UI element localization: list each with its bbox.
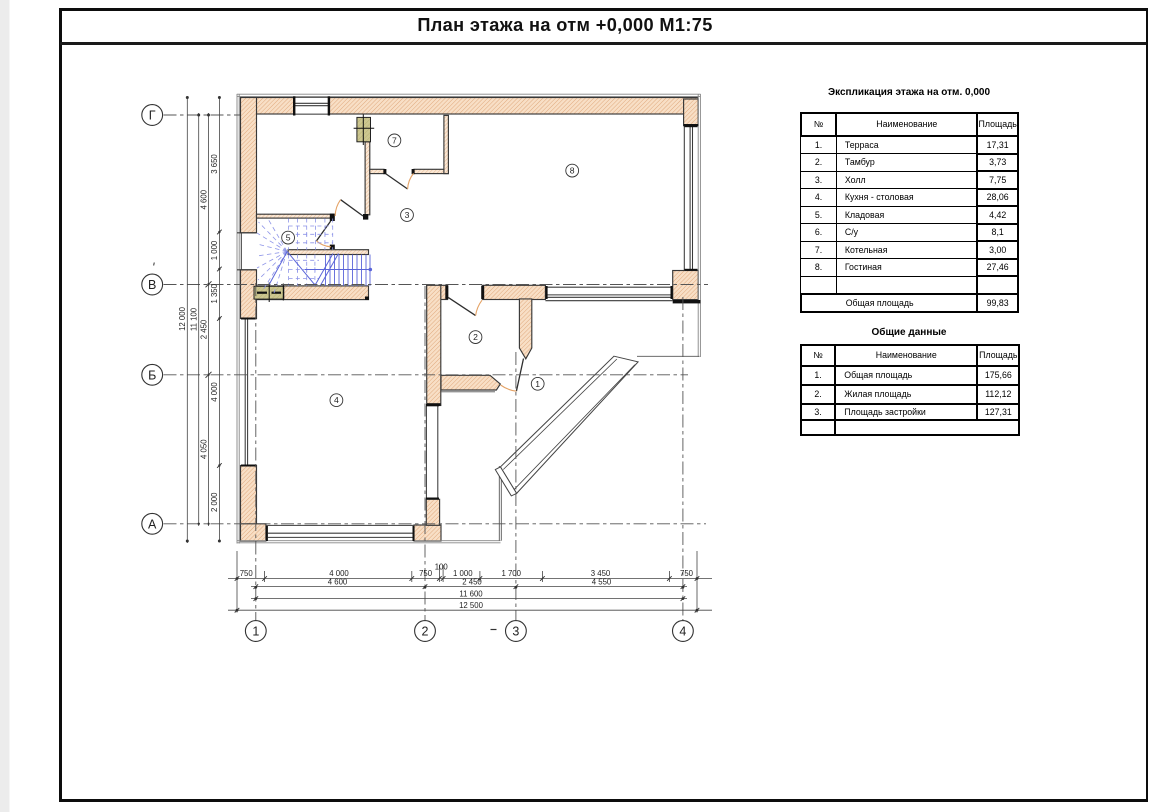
svg-text:4: 4 [679, 625, 686, 639]
svg-text:4: 4 [334, 395, 339, 405]
svg-text:4 050: 4 050 [199, 439, 208, 459]
svg-text:1 000: 1 000 [210, 240, 219, 260]
svg-text:4 600: 4 600 [199, 189, 208, 209]
svg-text:2 450: 2 450 [462, 577, 482, 586]
svg-text:8: 8 [570, 166, 575, 176]
svg-text:100: 100 [435, 563, 449, 572]
svg-text:3: 3 [405, 210, 410, 220]
svg-text:4 000: 4 000 [210, 382, 219, 402]
svg-text:2 450: 2 450 [199, 319, 208, 339]
svg-text:2 000: 2 000 [210, 492, 219, 512]
svg-text:Г: Г [149, 109, 156, 123]
svg-text:1 350: 1 350 [210, 283, 219, 303]
svg-text:3 650: 3 650 [210, 154, 219, 174]
svg-text:Б: Б [148, 368, 156, 382]
svg-text:750: 750 [419, 569, 433, 578]
svg-text:11 600: 11 600 [459, 589, 483, 598]
svg-text:12 500: 12 500 [459, 601, 484, 610]
svg-text:4 550: 4 550 [592, 577, 612, 586]
svg-text:А: А [148, 517, 157, 531]
svg-text:2: 2 [422, 625, 429, 639]
svg-text:7: 7 [392, 135, 397, 145]
svg-text:В: В [148, 278, 156, 292]
svg-text:12 000: 12 000 [178, 306, 187, 331]
svg-text:5: 5 [286, 233, 291, 243]
svg-text:3: 3 [512, 625, 519, 639]
svg-text:2: 2 [473, 332, 478, 342]
svg-text:750: 750 [680, 569, 694, 578]
svg-text:1: 1 [535, 379, 540, 389]
svg-text:1: 1 [252, 625, 259, 639]
svg-text:4 600: 4 600 [328, 577, 348, 586]
svg-text:11 100: 11 100 [190, 307, 199, 331]
svg-text:750: 750 [240, 569, 254, 578]
svg-text:1 700: 1 700 [501, 569, 521, 578]
